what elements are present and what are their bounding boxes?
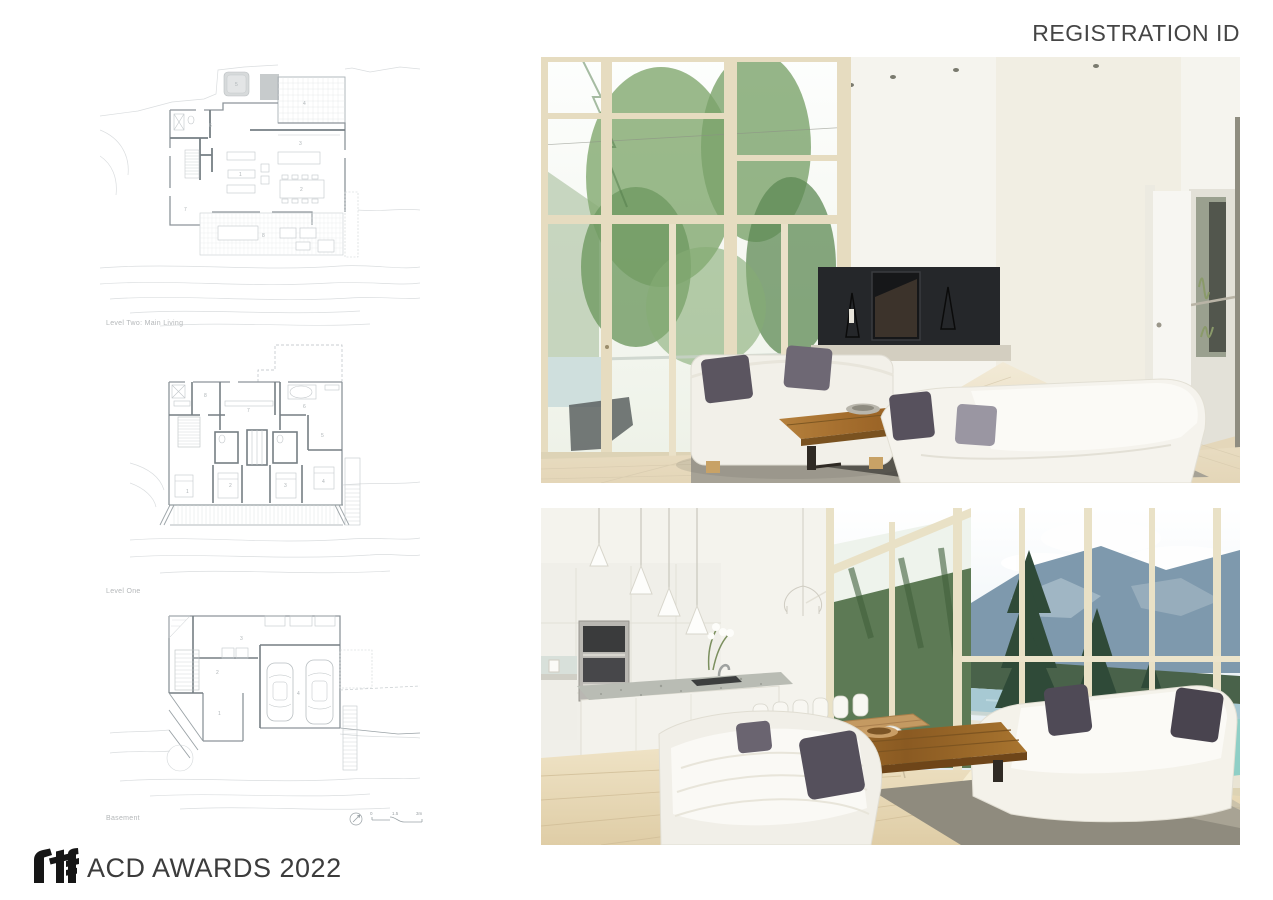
driveway xyxy=(340,650,420,770)
svg-text:6: 6 xyxy=(303,404,306,410)
presentation-board: REGISTRATION ID xyxy=(0,0,1273,900)
roof-outline-dashed xyxy=(258,345,342,382)
deck xyxy=(200,192,358,257)
kitchen-dining-furniture xyxy=(278,135,340,203)
svg-text:1: 1 xyxy=(186,489,189,495)
retaining-walls xyxy=(167,693,203,771)
throw-pillow xyxy=(1170,687,1224,743)
throw-pillow xyxy=(736,720,773,753)
counter xyxy=(541,674,577,680)
kettle xyxy=(549,660,559,672)
fireplace xyxy=(811,267,1011,361)
svg-text:4: 4 xyxy=(303,101,306,107)
svg-text:3: 3 xyxy=(240,636,243,642)
svg-text:3m: 3m xyxy=(416,811,423,816)
floor-plan-level-two: 1 2 3 4 5 6 7 8 xyxy=(100,60,420,328)
svg-text:1.5: 1.5 xyxy=(392,811,399,816)
svg-text:0: 0 xyxy=(370,811,373,816)
throw-pillow xyxy=(783,345,832,391)
door-handle xyxy=(605,345,609,349)
exterior-walls xyxy=(169,616,340,741)
lake-glimpse xyxy=(541,357,601,407)
svg-text:3: 3 xyxy=(299,141,302,147)
floor-plan-level-one: 1 2 3 4 5 6 7 8 xyxy=(130,335,420,583)
photo-living-room xyxy=(541,57,1240,483)
svg-text:2: 2 xyxy=(300,187,303,193)
svg-text:6: 6 xyxy=(209,123,212,129)
bath-fixtures xyxy=(172,385,339,465)
rtf-logo-icon xyxy=(33,848,79,884)
svg-text:5: 5 xyxy=(321,433,324,439)
footer-logo: ACD AWARDS 2022 xyxy=(33,848,342,884)
floor-plan-basement: 1 2 3 4 xyxy=(110,598,420,816)
garage-roof xyxy=(278,77,345,123)
plan-label-level-one: Level One xyxy=(106,588,141,595)
throw-pillow xyxy=(1043,683,1093,736)
svg-text:7: 7 xyxy=(247,408,250,414)
svg-text:2: 2 xyxy=(216,670,219,676)
room-numbers: 1 2 3 4 5 6 7 8 xyxy=(186,393,325,495)
throw-pillow xyxy=(955,404,998,447)
sofa-right xyxy=(881,379,1206,483)
svg-text:8: 8 xyxy=(204,393,207,399)
interior-walls xyxy=(169,382,342,503)
sofa-left xyxy=(659,711,882,845)
registration-id-label: REGISTRATION ID xyxy=(1032,20,1240,47)
svg-text:1: 1 xyxy=(239,172,242,178)
interior-walls xyxy=(170,110,345,180)
terrain-contours xyxy=(130,463,420,573)
throw-pillow xyxy=(798,729,866,800)
stairs xyxy=(185,150,199,178)
trees xyxy=(581,57,836,367)
stairs xyxy=(178,417,200,447)
laundry-fixtures xyxy=(222,616,335,658)
door-knob xyxy=(1157,323,1162,328)
beds xyxy=(175,467,334,498)
terrain-contours xyxy=(100,65,420,326)
living-room-furniture xyxy=(227,152,269,193)
patio-pad xyxy=(260,74,279,100)
award-title: ACD AWARDS 2022 xyxy=(87,855,342,884)
throw-blanket xyxy=(971,383,1198,451)
room-numbers: 1 2 3 4 5 6 7 8 xyxy=(184,82,306,239)
throw-pillow xyxy=(889,391,936,441)
stairs xyxy=(169,616,199,690)
svg-text:2: 2 xyxy=(229,483,232,489)
svg-text:7: 7 xyxy=(184,207,187,213)
svg-text:3: 3 xyxy=(284,483,287,489)
exterior-walls xyxy=(169,382,343,505)
plan-label-basement: Basement xyxy=(106,815,140,822)
bathroom-fixtures xyxy=(174,114,194,130)
garage-cars xyxy=(267,660,333,724)
deck xyxy=(160,505,349,525)
svg-text:5: 5 xyxy=(235,82,238,88)
svg-text:4: 4 xyxy=(297,691,300,697)
throw-pillow xyxy=(700,354,753,404)
interior-walls xyxy=(169,616,340,728)
plan-label-level-two: Level Two: Main Living xyxy=(106,320,183,327)
scale-bar: 0 1.5 3m xyxy=(346,806,426,830)
terrain-contours xyxy=(110,730,420,809)
svg-text:1: 1 xyxy=(218,711,221,717)
exterior-stair xyxy=(345,458,360,525)
photo-kitchen-dining xyxy=(541,508,1240,845)
svg-text:4: 4 xyxy=(322,479,325,485)
svg-text:8: 8 xyxy=(262,233,265,239)
